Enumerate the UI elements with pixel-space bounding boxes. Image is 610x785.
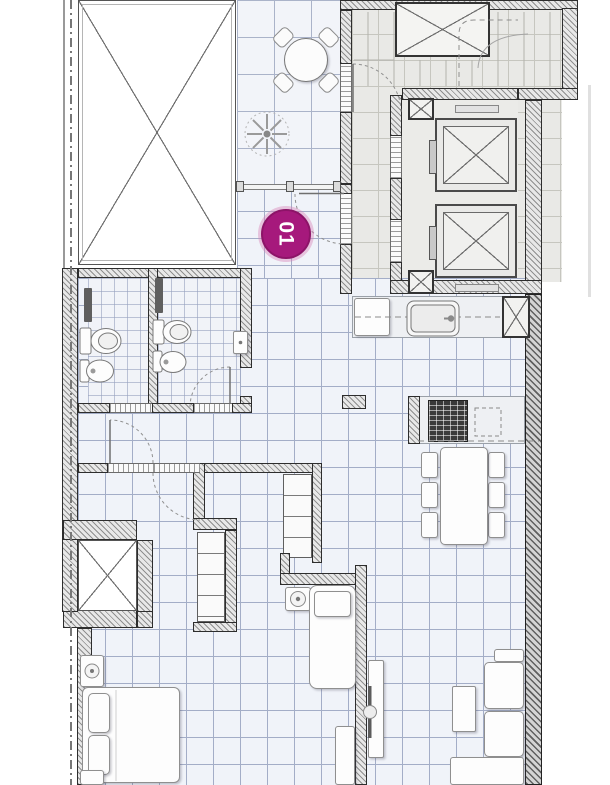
entry-door-threshold (340, 194, 352, 244)
wall-exterior-right (525, 294, 542, 785)
door-threshold (340, 64, 352, 112)
elevator-landing-door (390, 220, 402, 262)
partition-mullion (333, 181, 341, 192)
duct-shaft (408, 270, 434, 294)
wall-segment (232, 403, 252, 413)
wall-segment (78, 268, 252, 278)
wall-segment (562, 8, 578, 100)
sofa-cushion (484, 711, 524, 757)
wall-segment (137, 540, 153, 612)
sofa-armrest (494, 649, 524, 662)
wardrobe-closet (283, 474, 312, 558)
coffee-table (452, 686, 476, 732)
wall-segment (312, 463, 322, 563)
sofa-cushion (450, 757, 524, 785)
floor-bathroom-1 (88, 278, 148, 405)
door-threshold (194, 403, 232, 413)
dining-chair (421, 482, 438, 508)
refrigerator (354, 298, 390, 336)
floor-bathroom-2 (158, 278, 240, 405)
duct-shaft (502, 296, 530, 338)
wall-segment (355, 565, 367, 785)
wall-segment (340, 112, 352, 184)
wall-segment (225, 530, 237, 632)
elevator-sill (455, 105, 499, 113)
wall-segment (152, 403, 194, 413)
adjacent-wall-hint (588, 85, 591, 297)
wall-segment (340, 244, 352, 294)
terrace-table (284, 38, 328, 82)
floor-terrace (237, 0, 340, 184)
elevator-car-interior (443, 212, 509, 270)
door-threshold (154, 463, 200, 473)
duct-shaft (408, 98, 434, 120)
dining-chair (421, 452, 438, 478)
dining-chair (421, 512, 438, 538)
wall-segment (78, 463, 108, 473)
elevator-landing-door (390, 136, 402, 178)
tv-console (368, 660, 384, 758)
desk (335, 726, 355, 785)
column (342, 395, 366, 409)
void-shaft (78, 0, 236, 265)
partition-mullion (286, 181, 294, 192)
cooktop (428, 400, 468, 442)
nightstand (80, 655, 104, 687)
unit-badge-label: 01 (274, 221, 298, 246)
wall-segment (390, 95, 402, 136)
door-threshold (108, 463, 154, 473)
pillow (88, 735, 110, 775)
nightstand (80, 770, 104, 785)
door-threshold (110, 403, 152, 413)
washbasin (233, 331, 248, 354)
stair-shaft (395, 2, 490, 57)
wardrobe-closet (197, 532, 225, 622)
unit-badge[interactable]: 01 (261, 209, 311, 259)
wall-segment (193, 622, 237, 632)
wall-segment (340, 184, 352, 194)
wall-segment (63, 520, 137, 540)
shower-screen (84, 288, 92, 322)
dining-chair (488, 512, 505, 538)
shower-screen (155, 278, 163, 313)
wall-segment (340, 10, 352, 64)
elevator-car-door (429, 226, 437, 260)
wall-segment (193, 518, 237, 530)
elevator-sill (455, 284, 499, 292)
dining-chair (488, 482, 505, 508)
dining-chair (488, 452, 505, 478)
wall-segment (390, 178, 402, 220)
dining-table (440, 447, 488, 545)
pillow (314, 591, 351, 617)
sofa-cushion (484, 662, 524, 709)
wall-segment (63, 610, 137, 628)
property-line (70, 0, 72, 785)
wall-segment (518, 88, 578, 100)
elevator-car-interior (443, 126, 509, 184)
partition-mullion (236, 181, 244, 192)
wall-segment (200, 463, 322, 473)
wall-segment (280, 573, 367, 585)
elevator-car-door (429, 140, 437, 174)
boundary-line (63, 0, 65, 268)
pillow (88, 693, 110, 733)
floor-plan-canvas: 01 (0, 0, 610, 785)
wall-segment (525, 100, 542, 296)
light-well (78, 540, 137, 611)
wall-segment (78, 403, 110, 413)
column (408, 396, 420, 444)
nightstand (285, 587, 311, 611)
